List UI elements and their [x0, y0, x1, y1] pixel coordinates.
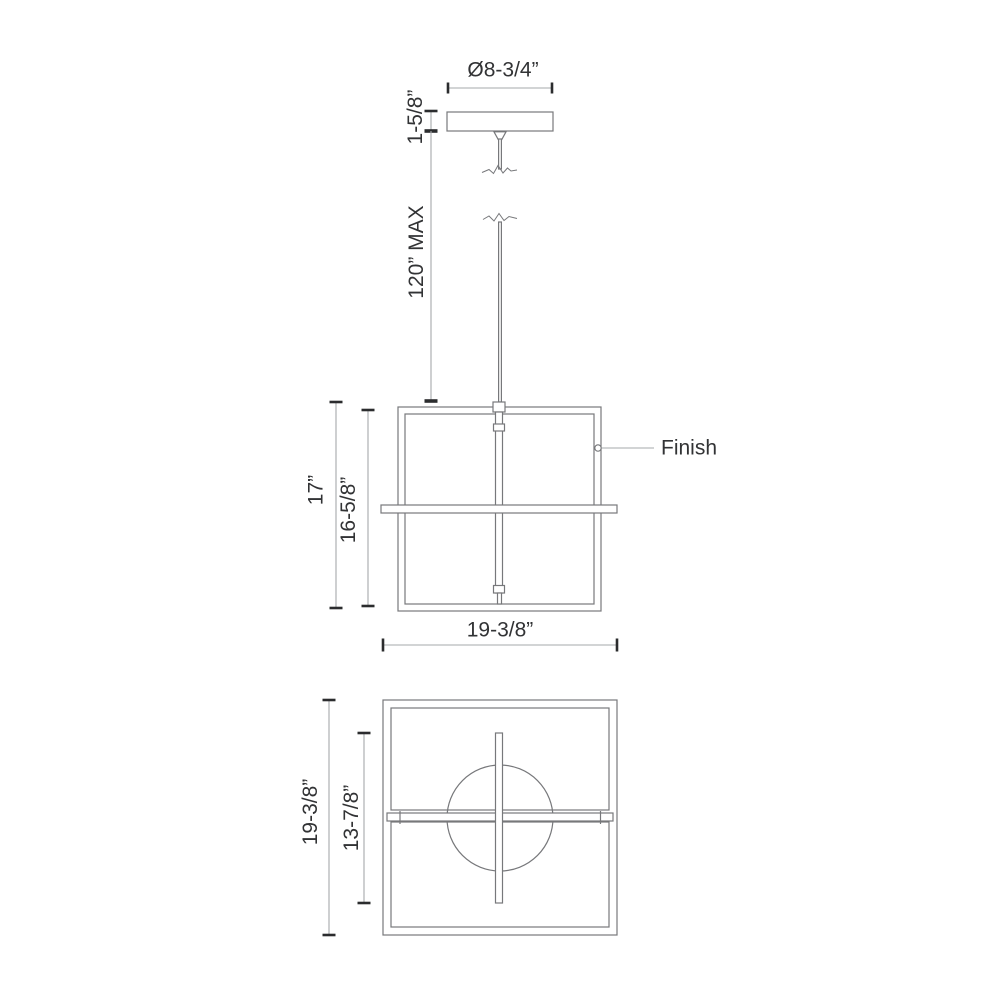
- finish-callout-marker: [595, 445, 601, 451]
- pendant-fixture-dimension-diagram: Ø8-3/4” 1-5/8” 120” MAX Finish: [0, 0, 1000, 1000]
- vertical-bar-joint-bottom: [494, 586, 505, 594]
- vertical-bar-stub-bottom: [498, 593, 502, 604]
- top-view-canopy: Ø8-3/4” 1-5/8” 120” MAX: [404, 59, 553, 403]
- front-view-fixture: Finish 17” 16-5/8” 19-3/8”: [305, 402, 718, 652]
- suspension-stem-lower: [499, 222, 502, 402]
- finish-label: Finish: [661, 437, 717, 460]
- break-mark-lower: [483, 214, 517, 222]
- overall-depth-label: 19-3/8”: [299, 779, 322, 846]
- suspension-max-label: 120” MAX: [405, 205, 428, 298]
- overall-width-label: 19-3/8”: [467, 619, 534, 642]
- canopy-diameter-label: Ø8-3/4”: [467, 59, 538, 82]
- suspension-stem-upper: [499, 139, 502, 169]
- overall-height-label: 17”: [305, 475, 328, 505]
- inner-bar-length-label: 13-7/8”: [340, 785, 363, 852]
- stem-connector-block: [493, 402, 505, 412]
- vertical-bar: [496, 412, 503, 593]
- spec-sheet-line-drawing: Ø8-3/4” 1-5/8” 120” MAX Finish: [0, 0, 1000, 1000]
- canopy-outline: [447, 112, 553, 131]
- frame-height-label: 16-5/8”: [337, 477, 360, 544]
- bottom-view-fixture: 19-3/8” 13-7/8”: [299, 700, 617, 935]
- horizontal-bar: [381, 505, 617, 513]
- vertical-bar-joint-top: [494, 424, 505, 431]
- canopy-height-label: 1-5/8”: [404, 90, 427, 145]
- plan-vertical-bar: [496, 733, 503, 903]
